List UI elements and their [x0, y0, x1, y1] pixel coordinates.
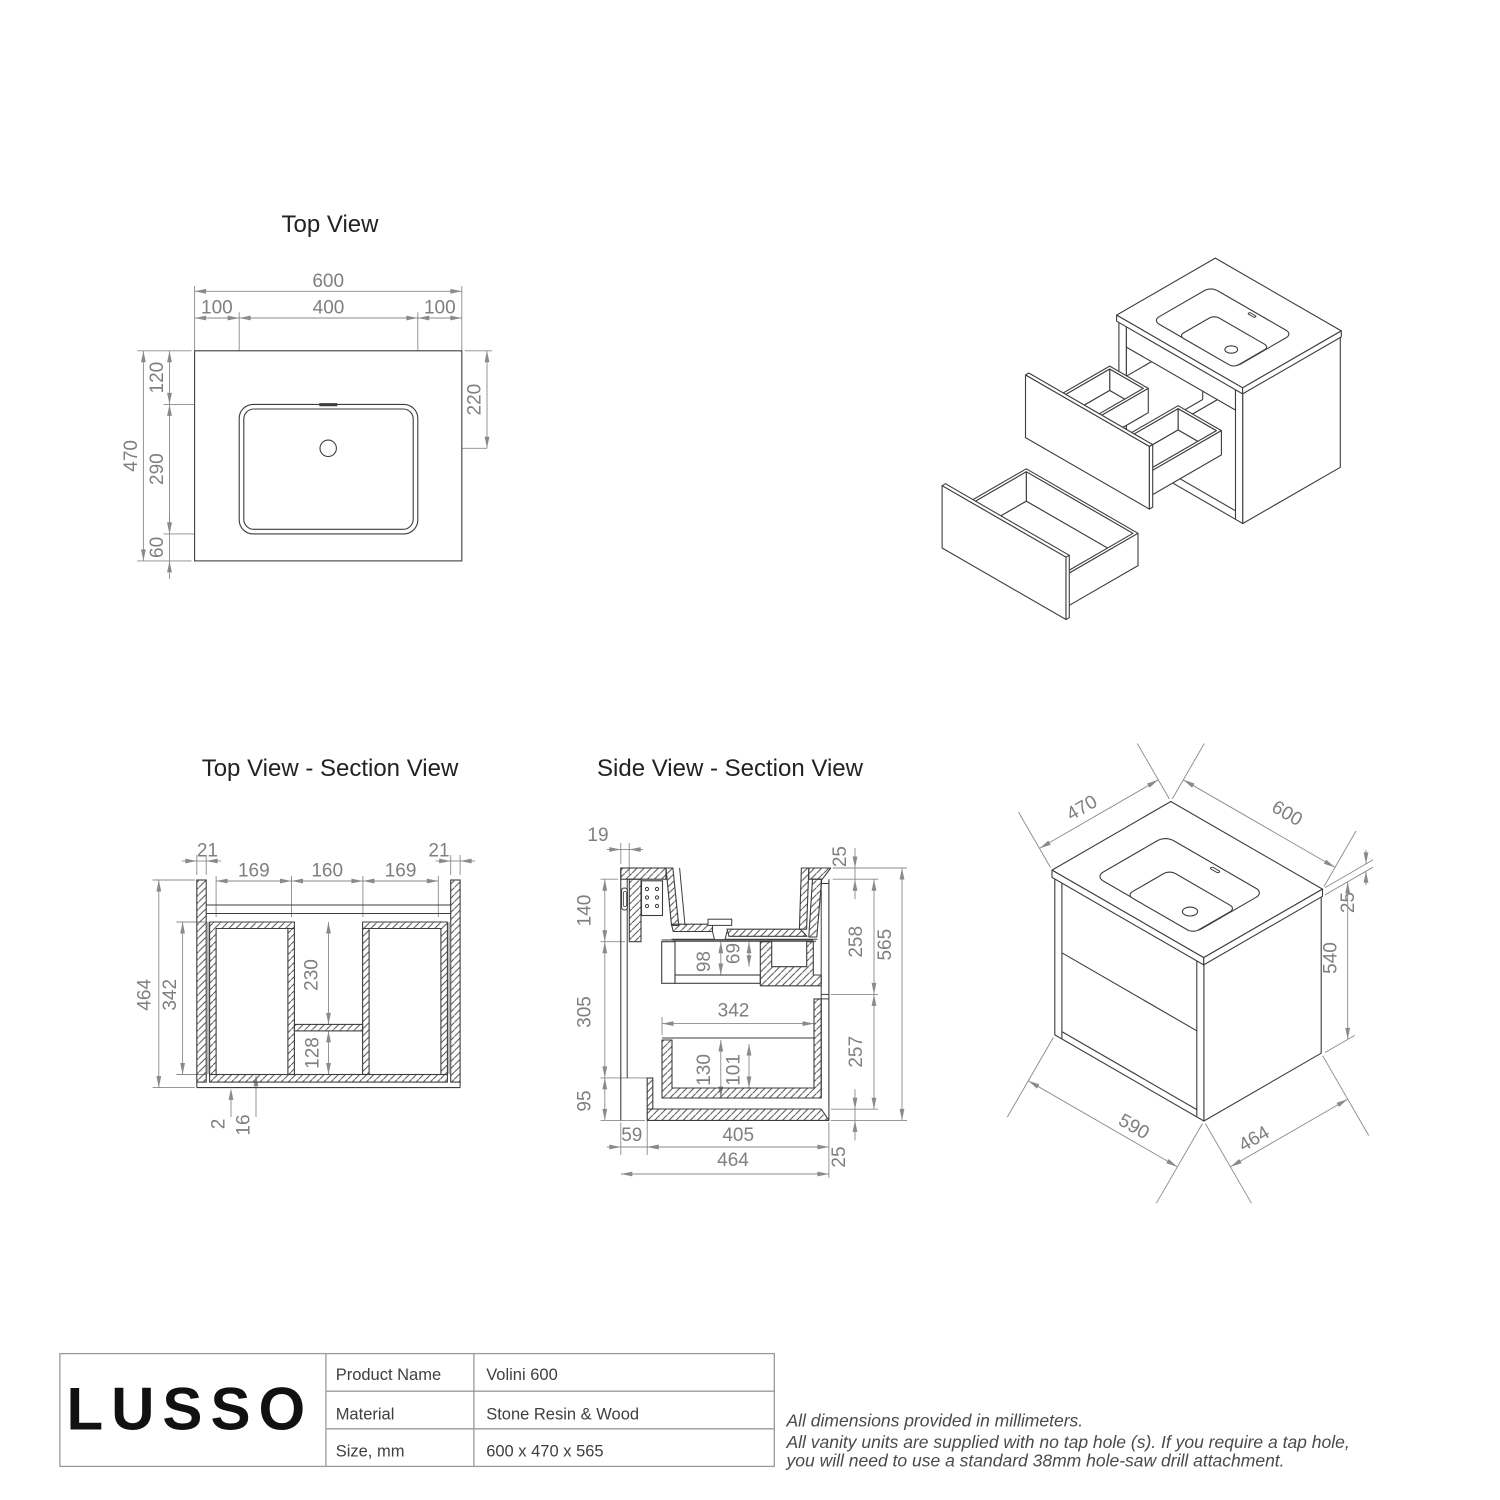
svg-text:342: 342	[160, 979, 181, 1011]
svg-text:Size, mm: Size, mm	[336, 1443, 405, 1461]
svg-text:60: 60	[147, 537, 168, 558]
svg-text:Product Name: Product Name	[336, 1366, 441, 1384]
svg-text:169: 169	[385, 861, 417, 882]
svg-text:95: 95	[574, 1090, 595, 1111]
svg-text:LUSSO: LUSSO	[66, 1376, 313, 1443]
svg-text:565: 565	[875, 929, 896, 961]
svg-text:160: 160	[311, 861, 343, 882]
svg-text:2: 2	[209, 1119, 230, 1130]
svg-text:464: 464	[135, 979, 156, 1011]
svg-text:130: 130	[694, 1054, 715, 1086]
svg-text:19: 19	[587, 825, 608, 846]
svg-text:540: 540	[1321, 942, 1342, 974]
svg-text:101: 101	[724, 1054, 745, 1086]
svg-text:220: 220	[465, 384, 486, 416]
svg-text:290: 290	[147, 453, 168, 485]
svg-text:All vanity units are supplied: All vanity units are supplied with no ta…	[786, 1432, 1350, 1452]
svg-text:405: 405	[722, 1125, 754, 1146]
svg-text:470: 470	[121, 440, 142, 472]
svg-text:59: 59	[621, 1125, 642, 1146]
svg-text:Top View: Top View	[282, 211, 380, 238]
svg-text:16: 16	[234, 1114, 255, 1135]
svg-text:305: 305	[574, 996, 595, 1028]
svg-text:169: 169	[238, 861, 270, 882]
svg-text:342: 342	[718, 1001, 750, 1022]
svg-text:Side View - Section View: Side View - Section View	[597, 755, 864, 782]
svg-text:600 x 470 x 565: 600 x 470 x 565	[486, 1443, 603, 1461]
svg-text:21: 21	[428, 841, 449, 862]
svg-text:25: 25	[830, 846, 851, 867]
svg-text:69: 69	[724, 943, 745, 964]
svg-text:464: 464	[717, 1150, 749, 1171]
svg-text:400: 400	[313, 298, 345, 319]
svg-text:Top View - Section View: Top View - Section View	[202, 755, 459, 782]
svg-text:230: 230	[302, 959, 323, 991]
svg-text:21: 21	[197, 841, 218, 862]
svg-text:98: 98	[694, 951, 715, 972]
svg-text:Stone Resin & Wood: Stone Resin & Wood	[486, 1405, 639, 1423]
svg-text:128: 128	[303, 1037, 324, 1069]
svg-text:100: 100	[424, 298, 456, 319]
svg-text:25: 25	[829, 1146, 850, 1167]
svg-text:600: 600	[312, 271, 344, 292]
svg-text:Material: Material	[336, 1405, 395, 1423]
svg-text:All dimensions provided in mil: All dimensions provided in millimeters.	[786, 1411, 1084, 1431]
svg-text:258: 258	[846, 926, 867, 958]
svg-text:you will need to use a standar: you will need to use a standard 38mm hol…	[786, 1451, 1285, 1471]
svg-text:120: 120	[147, 362, 168, 394]
svg-text:140: 140	[574, 895, 595, 927]
svg-text:257: 257	[846, 1036, 867, 1068]
svg-text:100: 100	[201, 298, 233, 319]
svg-text:25: 25	[1338, 892, 1359, 913]
svg-text:Volini 600: Volini 600	[486, 1366, 558, 1384]
